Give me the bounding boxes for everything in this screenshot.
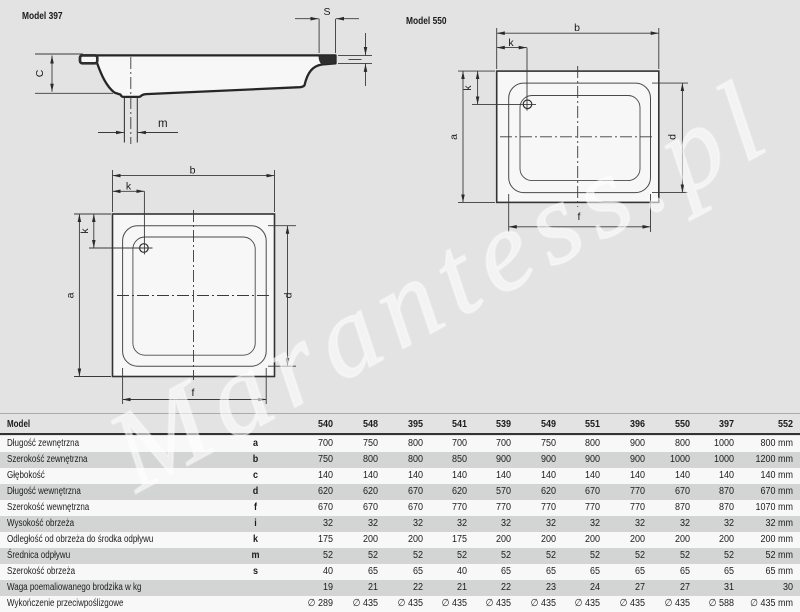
svg-text:C: C: [34, 69, 46, 77]
svg-text:b: b: [574, 22, 580, 34]
svg-text:k: k: [126, 181, 132, 193]
svg-text:a: a: [448, 134, 460, 140]
svg-text:Model 397: Model 397: [22, 10, 63, 22]
svg-text:b: b: [190, 165, 196, 177]
svg-text:k: k: [508, 37, 514, 49]
svg-text:Model 550: Model 550: [406, 15, 447, 27]
svg-text:k: k: [79, 228, 91, 234]
svg-text:a: a: [65, 292, 77, 298]
svg-text:k: k: [462, 85, 474, 91]
svg-text:S: S: [323, 6, 330, 18]
svg-text:m: m: [158, 118, 168, 130]
